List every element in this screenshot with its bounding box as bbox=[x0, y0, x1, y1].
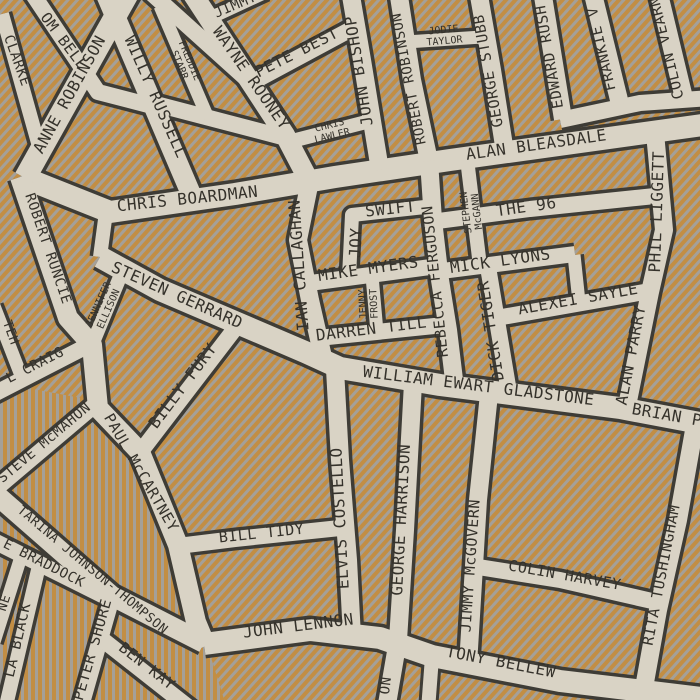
street-map: OM BELL CLARKE ANNE ROBINSON WILLY RUSSE… bbox=[0, 0, 700, 700]
street-label-jenny-frost: JENNY FROST bbox=[357, 288, 381, 319]
street-label-jodie-taylor: JODIE TAYLOR bbox=[425, 23, 464, 48]
svg-text:FROST: FROST bbox=[368, 288, 381, 319]
street-label-joy: JOY bbox=[345, 227, 366, 258]
street-label-harrison-fragment: ON bbox=[377, 676, 395, 696]
street-map-canvas: OM BELL CLARKE ANNE ROBINSON WILLY RUSSE… bbox=[0, 0, 700, 700]
